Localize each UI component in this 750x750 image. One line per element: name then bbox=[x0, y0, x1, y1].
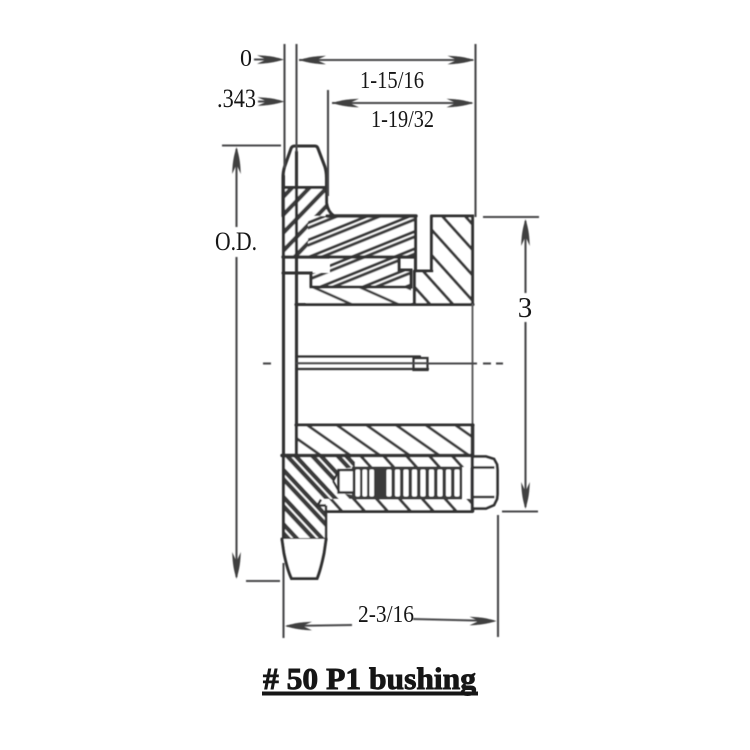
svg-text:0: 0 bbox=[240, 46, 252, 72]
svg-text:1-15/16: 1-15/16 bbox=[360, 68, 424, 94]
svg-text:1-19/32: 1-19/32 bbox=[371, 107, 434, 133]
svg-text:# 50 P1 bushing: # 50 P1 bushing bbox=[263, 661, 477, 696]
svg-text:.343: .343 bbox=[217, 84, 256, 113]
svg-text:3: 3 bbox=[518, 292, 533, 324]
svg-text:2-3/16: 2-3/16 bbox=[358, 602, 414, 628]
svg-text:O.D.: O.D. bbox=[215, 227, 257, 256]
